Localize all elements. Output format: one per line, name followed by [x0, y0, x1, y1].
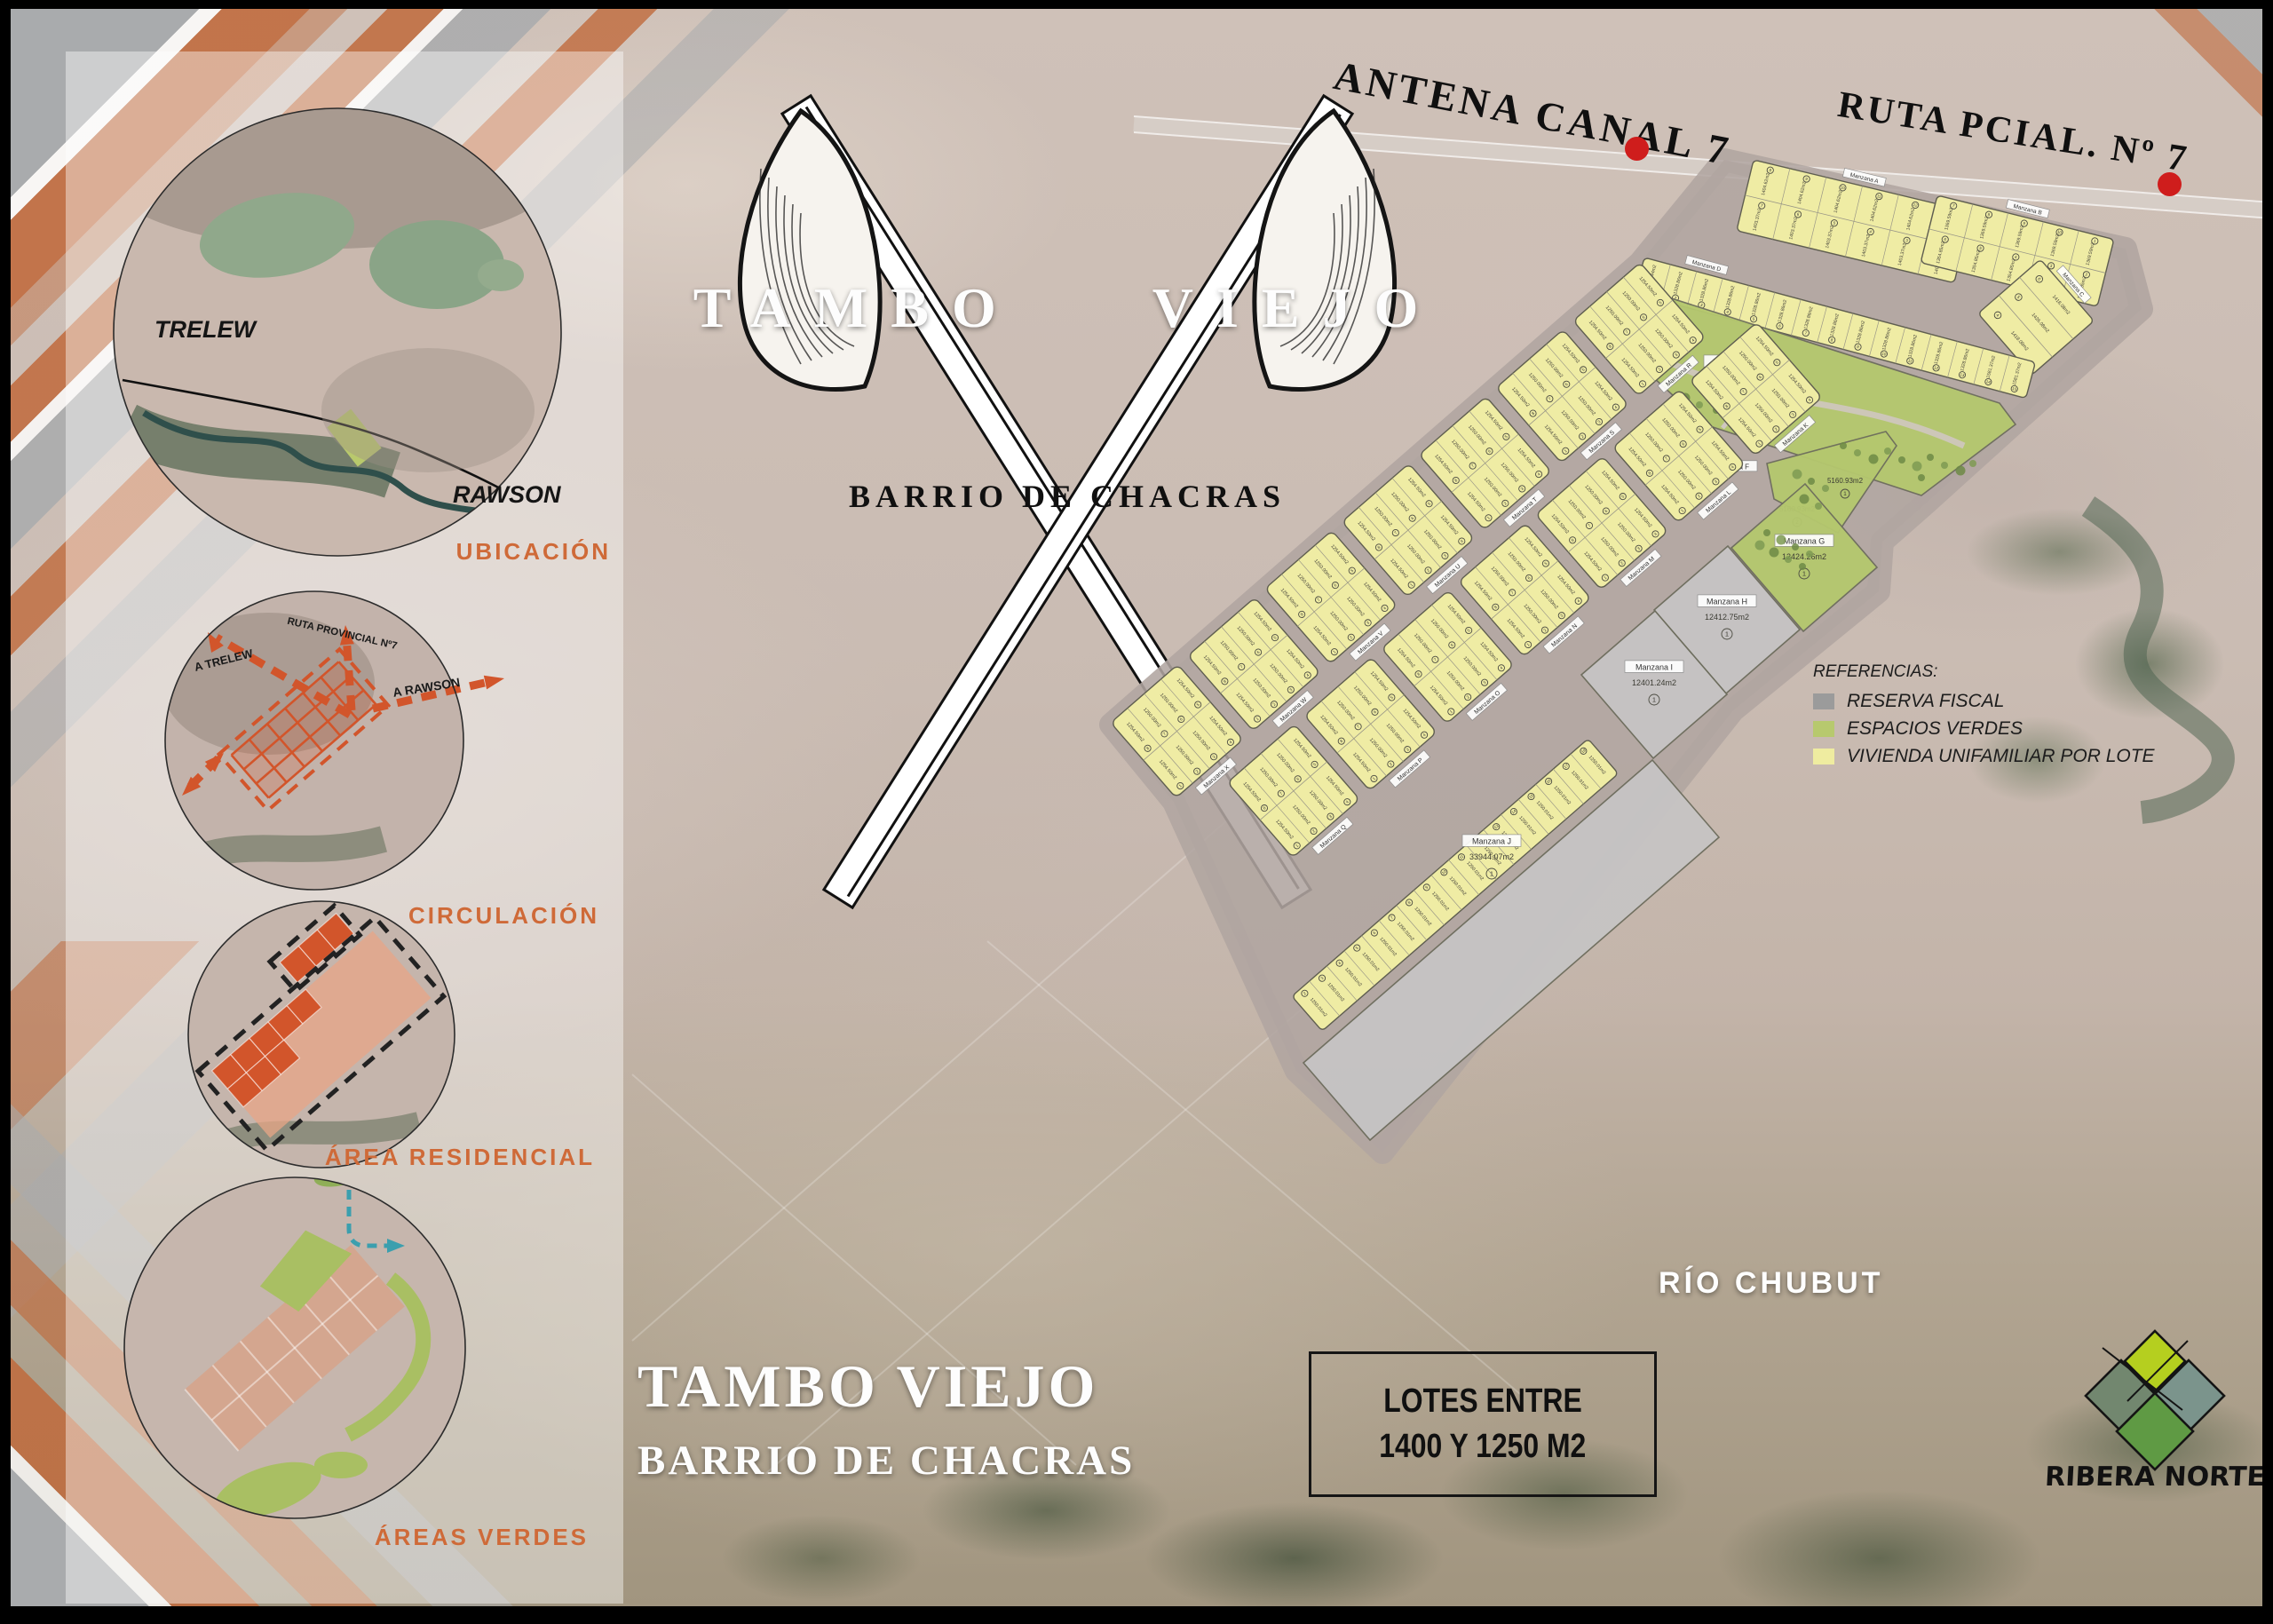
footer-title: TAMBO VIEJO [638, 1351, 1098, 1422]
svg-text:33944.07m2: 33944.07m2 [1469, 852, 1514, 861]
antenna-marker-dot [1625, 137, 1649, 161]
horn-icon [1255, 111, 1395, 390]
svg-text:5160.93m2: 5160.93m2 [1827, 477, 1864, 485]
svg-text:1: 1 [1843, 491, 1847, 497]
lot-size-box: LOTES ENTRE 1400 Y 1250 M2 [1309, 1351, 1657, 1497]
espacios-verdes-swatch [1813, 721, 1834, 737]
lot-size-line2: 1400 Y 1250 M2 [1379, 1428, 1586, 1466]
svg-text:1: 1 [1652, 696, 1656, 704]
manzana-label: Manzana H [1698, 595, 1756, 607]
svg-text:1: 1 [1490, 870, 1493, 878]
reserva-fiscal-swatch [1813, 693, 1834, 709]
lot-size-line1: LOTES ENTRE [1383, 1382, 1581, 1421]
rio-chubut-label: RÍO CHUBUT [1659, 1266, 1883, 1301]
route-marker-dot [2158, 172, 2182, 196]
legend-item-label: ESPACIOS VERDES [1847, 718, 2023, 739]
sidebar-label-areas-verdes: ÁREAS VERDES [326, 1524, 589, 1551]
svg-text:Manzana H: Manzana H [1707, 598, 1747, 606]
inset-area-residencial [175, 891, 455, 1168]
legend-item-verdes: ESPACIOS VERDES [1813, 718, 2155, 740]
inset-areas-verdes [124, 1156, 471, 1529]
svg-text:12401.24m2: 12401.24m2 [1632, 678, 1676, 687]
svg-text:Manzana G: Manzana G [1784, 537, 1826, 546]
logo-word-viejo: VIEJO [1152, 275, 1442, 341]
brand-name: RIBERA NORTE [2043, 1462, 2267, 1493]
logo-word-tambo: TAMBO [693, 275, 1019, 341]
ubicacion-rawson-label: RAWSON [453, 481, 561, 509]
legend-item-label: VIVIENDA UNIFAMILIAR POR LOTE [1847, 746, 2155, 766]
footer-subtitle: BARRIO DE CHACRAS [638, 1437, 1135, 1485]
manzana-label: Manzana I [1625, 661, 1683, 673]
sidebar-label-area-residencial: ÁREA RESIDENCIAL [311, 1144, 595, 1171]
logo-wordmark: TAMBO VIEJO [668, 275, 1467, 341]
ubicacion-trelew-label: TRELEW [154, 316, 256, 344]
svg-text:1: 1 [1802, 570, 1806, 578]
plan-svg: 1404.62m281404.62m291404.62m2101404.62m2… [11, 9, 2273, 1624]
sidebar-label-ubicacion: UBICACIÓN [348, 538, 611, 566]
vivienda-swatch [1813, 749, 1834, 764]
poster-canvas: 1404.62m281404.62m291404.62m2101404.62m2… [0, 0, 2273, 1624]
svg-text:Manzana I: Manzana I [1635, 663, 1673, 672]
legend: REFERENCIAS: RESERVA FISCAL ESPACIOS VER… [1813, 662, 2155, 773]
sidebar-label-circulacion: CIRCULACIÓN [337, 902, 599, 930]
legend-title: REFERENCIAS: [1813, 662, 2155, 682]
legend-item-reserva: RESERVA FISCAL [1813, 691, 2155, 712]
logo-subtitle: BARRIO DE CHACRAS [668, 478, 1467, 515]
svg-text:12412.75m2: 12412.75m2 [1705, 613, 1749, 622]
legend-item-vivienda: VIVIENDA UNIFAMILIAR POR LOTE [1813, 746, 2155, 767]
legend-item-label: RESERVA FISCAL [1847, 691, 2004, 711]
svg-text:1: 1 [1725, 630, 1729, 638]
horn-icon [740, 111, 880, 390]
manzana-label: Manzana J [1462, 835, 1521, 847]
svg-text:Manzana J: Manzana J [1472, 837, 1511, 846]
brand-logo [2086, 1331, 2224, 1470]
